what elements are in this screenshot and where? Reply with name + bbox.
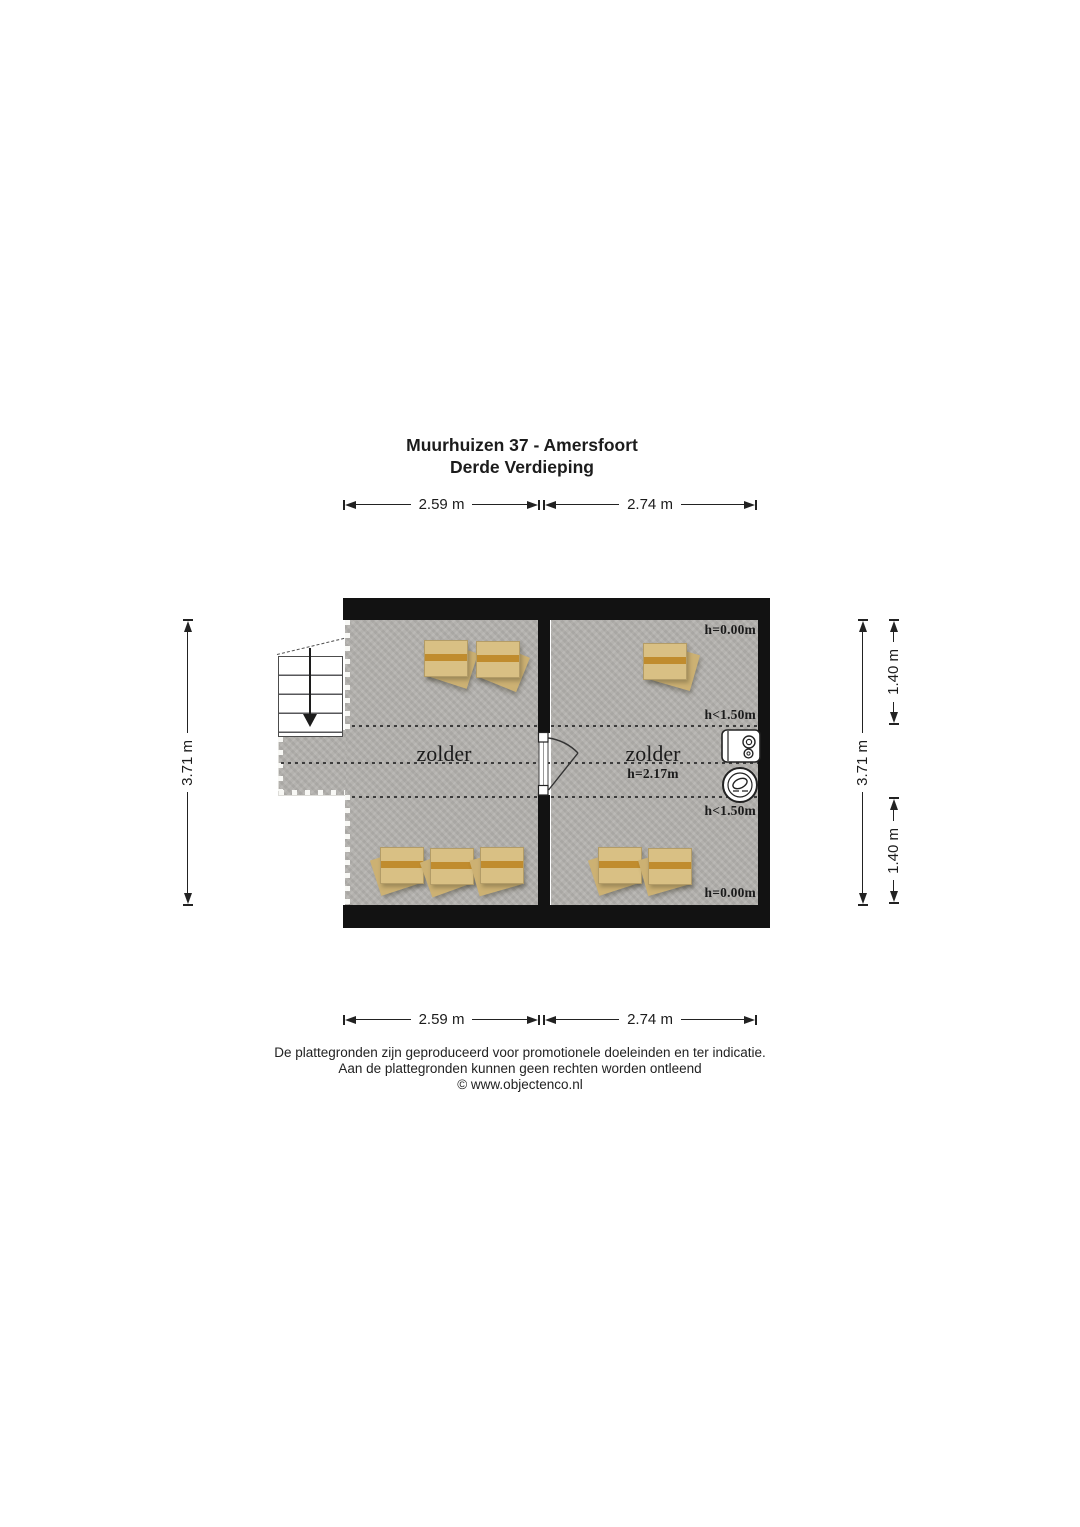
dim-line: [681, 1019, 744, 1020]
arrow-down-icon: [859, 893, 867, 904]
dim-line: [862, 632, 863, 733]
dim-line: [893, 702, 894, 712]
floor-plan: zolder zolder h=2.17m h=0.00m h<1.50m h<…: [0, 0, 1080, 1527]
cardboard-box: [424, 640, 468, 677]
landing-edge-ticks-bottom: [279, 790, 345, 795]
dimension-right-height: 3.71 m: [855, 619, 870, 906]
arrow-down-icon: [184, 893, 192, 904]
clearance-label-upper: h<1.50m: [640, 707, 756, 723]
box-front: [598, 847, 642, 884]
dim-line: [893, 810, 894, 821]
dimension-label: 2.74 m: [619, 1011, 681, 1028]
arrow-down-icon: [890, 712, 898, 723]
dim-end-tick: [889, 902, 899, 904]
height-label-top: h=0.00m: [640, 622, 756, 638]
box-front: [380, 847, 424, 884]
dim-line: [862, 792, 863, 893]
dimension-label: 1.40 m: [885, 649, 902, 695]
dim-line: [356, 1019, 411, 1020]
clearance-line-upper-left: [352, 725, 539, 727]
arrow-up-icon: [184, 621, 192, 632]
wall-middle-lower: [538, 795, 550, 905]
box-front: [424, 640, 468, 677]
dimension-bottom-right: 2.74 m: [543, 1012, 757, 1027]
dim-line: [187, 632, 188, 733]
wall-top: [343, 598, 770, 620]
arrow-right-icon: [527, 1016, 538, 1024]
arrow-down-icon: [890, 891, 898, 902]
wall-bottom: [343, 905, 770, 928]
dimension-label: 2.59 m: [411, 1011, 473, 1028]
box-tape: [425, 654, 467, 661]
dimension-bottom-left: 2.59 m: [343, 1012, 540, 1027]
height-label-bottom: h=0.00m: [640, 885, 756, 901]
box-front: [648, 848, 692, 885]
dimension-label: 3.71 m: [854, 740, 871, 786]
clearance-label-lower: h<1.50m: [640, 803, 756, 819]
box-tape: [481, 861, 523, 868]
arrow-left-icon: [345, 1016, 356, 1024]
wall-middle-upper: [538, 620, 550, 733]
dim-end-tick: [755, 1015, 757, 1025]
box-tape: [644, 657, 686, 664]
landing-edge-ticks-left: [278, 737, 283, 791]
cardboard-box: [643, 643, 687, 680]
ceiling-height-label: h=2.17m: [573, 766, 733, 782]
dimension-right-upper: 1.40 m: [886, 619, 901, 725]
cardboard-box: [476, 641, 520, 678]
room-label-right: zolder: [573, 741, 733, 767]
arrow-left-icon: [545, 1016, 556, 1024]
dim-line: [472, 1019, 527, 1020]
arrow-up-icon: [890, 799, 898, 810]
dim-end-tick: [538, 1015, 540, 1025]
dim-line: [893, 880, 894, 891]
dimension-label: 3.71 m: [179, 740, 196, 786]
box-front: [643, 643, 687, 680]
arrow-up-icon: [890, 621, 898, 632]
arrow-up-icon: [859, 621, 867, 632]
room-label-left: zolder: [364, 741, 524, 767]
dim-end-tick: [889, 723, 899, 725]
box-tape: [381, 861, 423, 868]
dim-line: [893, 632, 894, 642]
cardboard-box: [480, 847, 524, 884]
knee-wall-ticks-upper: [345, 620, 350, 731]
box-front: [476, 641, 520, 678]
clearance-line-lower-left: [352, 796, 539, 798]
arrow-right-icon: [744, 1016, 755, 1024]
cardboard-box: [430, 848, 474, 885]
knee-wall-ticks-lower: [345, 795, 350, 905]
dimension-right-lower: 1.40 m: [886, 797, 901, 904]
dim-end-tick: [858, 904, 868, 906]
stairs-down-arrow-icon: [309, 648, 311, 716]
disclaimer: De plattegronden zijn geproduceerd voor …: [120, 1045, 920, 1093]
stairs-down-arrowhead-icon: [303, 714, 317, 727]
dimension-label: 1.40 m: [885, 828, 902, 874]
disclaimer-line1: De plattegronden zijn geproduceerd voor …: [120, 1045, 920, 1061]
cardboard-box: [598, 847, 642, 884]
box-tape: [649, 862, 691, 869]
cardboard-box: [380, 847, 424, 884]
dimension-left-height: 3.71 m: [180, 619, 195, 906]
box-tape: [431, 862, 473, 869]
dim-line: [556, 1019, 619, 1020]
box-tape: [599, 861, 641, 868]
cardboard-box: [648, 848, 692, 885]
disclaimer-line2: Aan de plattegronden kunnen geen rechten…: [120, 1061, 920, 1077]
dim-end-tick: [183, 904, 193, 906]
dim-line: [187, 792, 188, 893]
box-front: [480, 847, 524, 884]
box-front: [430, 848, 474, 885]
floorplan-page: Muurhuizen 37 - Amersfoort Derde Verdiep…: [0, 0, 1080, 1527]
box-tape: [477, 655, 519, 662]
copyright: © www.objectenco.nl: [120, 1077, 920, 1093]
